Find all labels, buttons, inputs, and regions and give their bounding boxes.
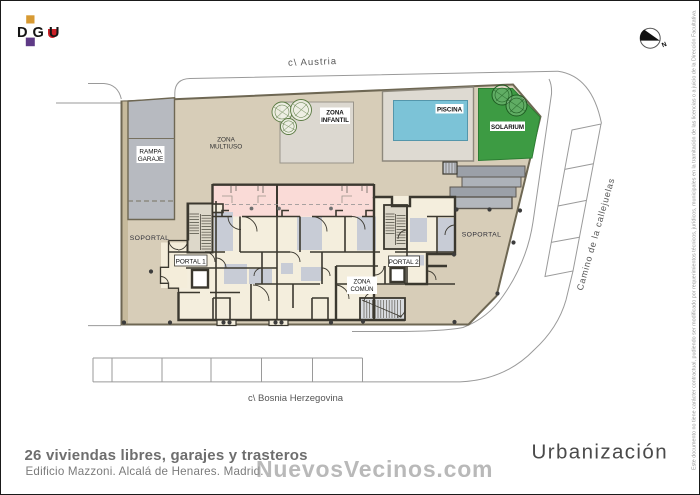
svg-text:SOPORTAL: SOPORTAL xyxy=(130,235,170,242)
svg-text:c\ Bosnia Herzegovina: c\ Bosnia Herzegovina xyxy=(248,393,344,404)
svg-text:ZONA: ZONA xyxy=(326,110,344,117)
svg-text:Urbanización: Urbanización xyxy=(532,441,668,464)
svg-text:ZONA: ZONA xyxy=(217,137,235,144)
svg-text:COMÚN: COMÚN xyxy=(350,286,373,293)
svg-text:SOPORTAL: SOPORTAL xyxy=(462,232,502,239)
svg-text:NuevosVecinos.com: NuevosVecinos.com xyxy=(256,456,493,482)
svg-text:RAMPA: RAMPA xyxy=(139,149,162,156)
svg-text:PORTAL 1: PORTAL 1 xyxy=(176,259,207,266)
svg-text:Edificio Mazzoni. Alcalá de He: Edificio Mazzoni. Alcalá de Henares. Mad… xyxy=(26,465,264,478)
svg-text:Este documento no tiene caráct: Este documento no tiene carácter contrac… xyxy=(692,9,698,470)
svg-text:PISCINA: PISCINA xyxy=(437,106,463,113)
svg-text:DGU: DGU xyxy=(17,25,64,41)
svg-text:c\ Austria: c\ Austria xyxy=(288,56,337,69)
svg-text:GARAJE: GARAJE xyxy=(138,156,164,163)
svg-text:INFANTIL: INFANTIL xyxy=(321,117,349,124)
svg-text:ZONA: ZONA xyxy=(354,279,372,286)
svg-text:PORTAL 2: PORTAL 2 xyxy=(389,259,420,266)
svg-text:MULTIUSO: MULTIUSO xyxy=(210,144,243,151)
svg-text:SOLARIUM: SOLARIUM xyxy=(491,124,524,131)
